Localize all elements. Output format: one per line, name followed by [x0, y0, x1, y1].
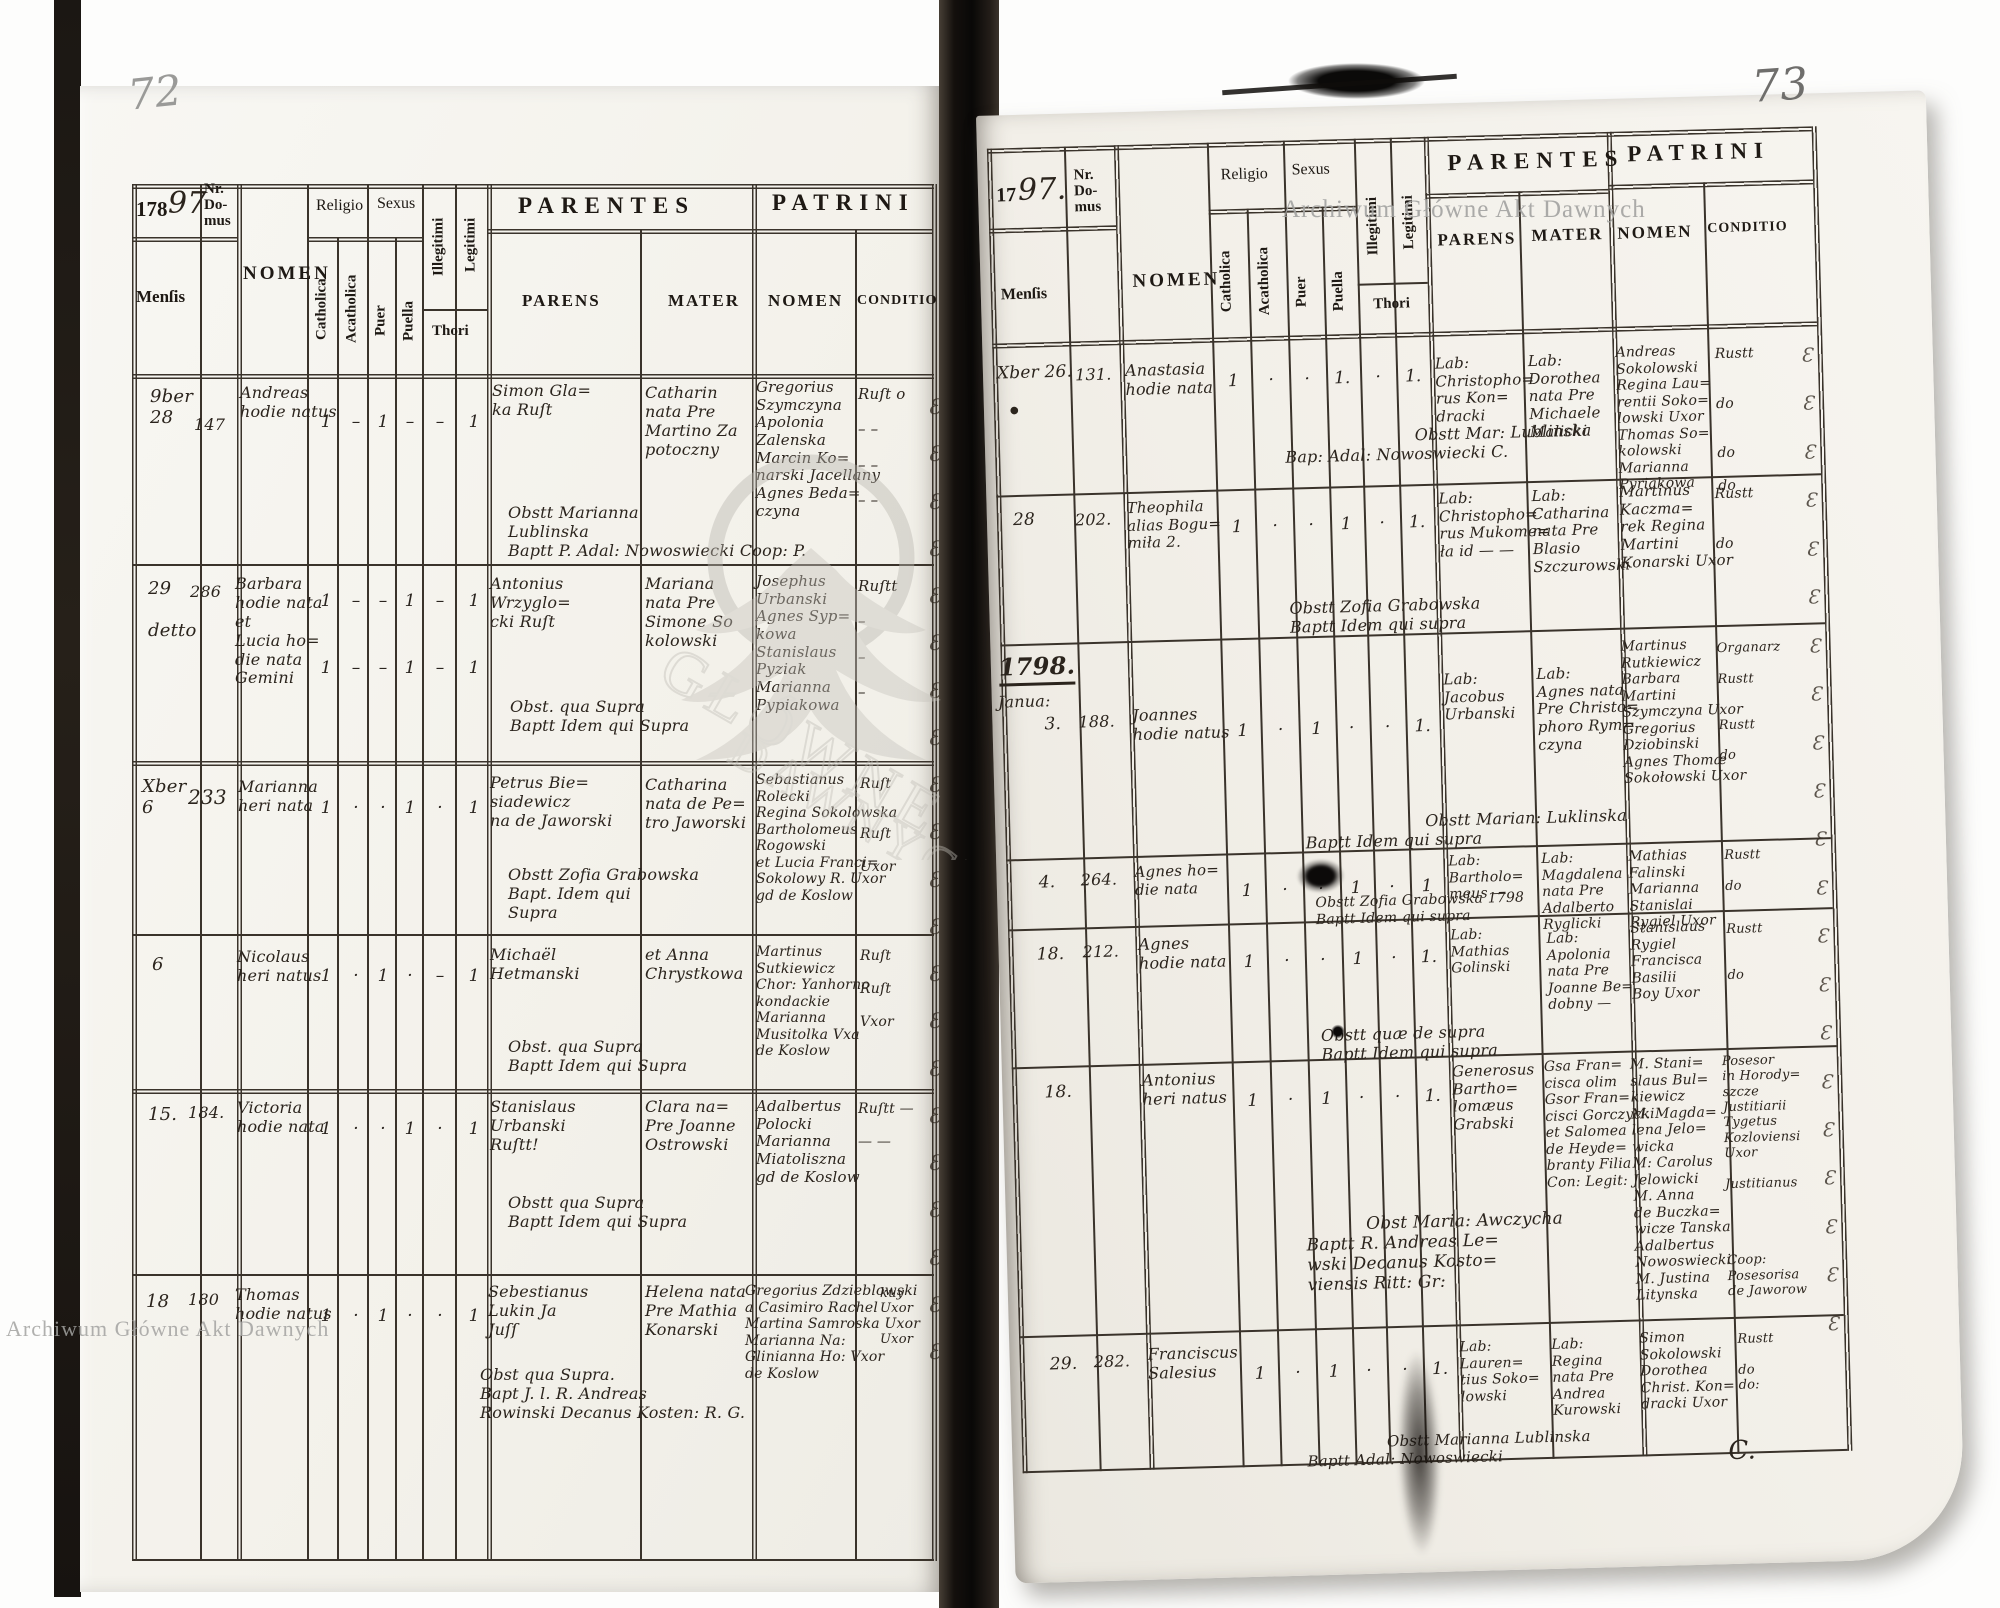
mark-illegitimi: ·	[430, 798, 450, 818]
entry-date: 4.	[1038, 872, 1055, 892]
mark-acatholica: ·	[1277, 951, 1298, 972]
clerk-note: Obstt Mar: Lublinska Bap: Adal: Nowoswie…	[1285, 421, 1626, 468]
col-nr-domus: Nr. Do- mus	[204, 182, 231, 229]
father: Simon Gla= ka Ruſt	[492, 382, 591, 420]
mark-legitimi: 1.	[1422, 1086, 1443, 1107]
child-name: Agnes hodie nata	[1138, 934, 1227, 974]
col-puer: Puer	[1288, 242, 1317, 343]
mark-acatholica: –	[346, 591, 366, 611]
clerk-note: Obstt Marianna Lublinska Baptt P. Adal: …	[508, 504, 806, 561]
mother: Helena nata Pre Mathia Konarski	[645, 1283, 746, 1340]
col-parens: PARENS	[522, 292, 601, 310]
godparents: Josephus Urbanski Agnes Syp= kowa Stanis…	[756, 573, 850, 715]
child-name: Agnes ho= die nata	[1134, 862, 1219, 900]
col-parentes: PARENTES	[1447, 146, 1625, 175]
godparents: Simon Sokolowski Dorothea Christ. Kon= d…	[1639, 1328, 1735, 1413]
mark-acatholica: ·	[1265, 516, 1286, 537]
house-number: 264.	[1080, 870, 1117, 890]
mark-puer: ·	[1313, 950, 1334, 971]
mark-legitimi: 1	[464, 591, 484, 611]
child-name: Nicolaus heri natus	[237, 948, 321, 986]
mark-catholica: 1	[316, 798, 336, 818]
house-number: 147	[194, 416, 225, 435]
rule	[132, 1559, 934, 1561]
clerk-note: Obstt Marianna Lublinska Baptt Adal: Now…	[1307, 1426, 1668, 1471]
col-nomen: NOMEN	[1132, 269, 1220, 291]
father: Petrus Bie= siadewicz na de Jaworski	[490, 774, 612, 831]
clerk-note: Obst. qua Supra Baptt Idem qui Supra	[508, 1038, 687, 1076]
father: Michaël Hetmanski	[490, 946, 580, 984]
entry-date: 3.	[1044, 714, 1061, 734]
rule	[1608, 179, 1813, 190]
godparents: Stanislaus Rygiel Francisca Basilii Boy …	[1630, 919, 1707, 1004]
ink-dot: ●	[1010, 405, 1019, 417]
mark-puella: ·	[400, 1306, 420, 1326]
rule	[132, 184, 934, 189]
mark-puer: 1	[1306, 719, 1327, 740]
condition: Ruſtt — — —	[858, 1101, 914, 1151]
child-name: Joannes hodie natus	[1132, 704, 1230, 744]
year-handwritten: 97	[168, 186, 207, 221]
col-puella: Puella	[396, 271, 422, 371]
mother: Lab: Magdalena nata Pre Adalberto Ryglic…	[1541, 849, 1624, 934]
mark-puer: 1	[373, 412, 393, 432]
condition: Rustt do	[1714, 485, 1755, 552]
clerk-note: Obstt quæ de supra Baptt Idem qui supra	[1321, 1022, 1498, 1065]
col-thori: Thori	[1373, 296, 1410, 313]
year-printed: 17	[996, 185, 1017, 207]
mark-catholica: 1	[316, 658, 336, 678]
mark-puer: 1	[1324, 1362, 1345, 1383]
father: Lab: Lauren= tius Soko= lowski	[1459, 1337, 1540, 1405]
rule	[989, 225, 1116, 233]
archive-watermark-top: Archiwum Główne Akt Dawnych	[1282, 196, 1646, 224]
condition: Posesor in Horody= szcze Justitiarii Tyg…	[1722, 1052, 1808, 1299]
godparents: Martinus Sutkiewicz Chor: Yanhorno konda…	[756, 944, 870, 1060]
house-number: 282.	[1094, 1352, 1131, 1372]
mark-catholica: 1	[1237, 881, 1258, 902]
page-number-left: 72	[126, 65, 185, 120]
entry-date: 29.	[1050, 1354, 1078, 1375]
godparents: Andreas Sokolowski Regina Lau= rentii So…	[1615, 342, 1714, 493]
house-number: 188.	[1078, 712, 1115, 732]
house-number: 202.	[1075, 510, 1112, 530]
house-number: 184.	[188, 1104, 224, 1123]
mark-illegitimi: –	[430, 658, 450, 678]
house-number: 212.	[1082, 942, 1119, 962]
col-catholica: Catholica	[308, 244, 336, 374]
mark-illegitimi: ·	[1387, 1087, 1408, 1108]
rule	[1247, 209, 1283, 1467]
mark-acatholica: ·	[346, 798, 366, 818]
rule	[487, 229, 932, 234]
year-handwritten: 97.	[1018, 172, 1067, 209]
archive-watermark-bottom: Archiwum Główne Akt Dawnych	[6, 1316, 329, 1342]
mark-legitimi: 1.	[1403, 366, 1424, 387]
father: Lab: Mathias Golinski	[1450, 926, 1511, 977]
page-right: 17 97. Nr. Do- mus Menſis NOMEN Religio …	[976, 90, 1965, 1583]
col-mater: MATER	[1531, 225, 1603, 245]
house-number: 180	[188, 1291, 219, 1310]
mark-puer: ·	[373, 798, 393, 818]
mark-puer: –	[373, 591, 393, 611]
mark-catholica: 1	[1223, 371, 1244, 392]
mark-catholica: 1	[1232, 721, 1253, 742]
mark-puella: 1	[1336, 514, 1357, 535]
year-break: 1798.	[999, 652, 1076, 687]
mark-illegitimi: ·	[1384, 948, 1405, 969]
mark-acatholica: ·	[346, 1306, 366, 1326]
mark-acatholica: ·	[1280, 1090, 1301, 1111]
col-patrini: PATRINI	[772, 191, 915, 215]
col-parens: PARENS	[1437, 229, 1516, 249]
mark-legitimi: 1	[464, 412, 484, 432]
col-sexus: Sexus	[377, 196, 415, 213]
mark-acatholica: –	[346, 658, 366, 678]
entry-date: Xber 6	[142, 776, 186, 818]
entry-date: 18	[146, 1291, 169, 1312]
rule	[307, 237, 423, 242]
rule	[337, 237, 339, 1561]
rule	[422, 184, 424, 1561]
mark-puella: 1	[400, 658, 420, 678]
col-patrini: PATRINI	[1627, 139, 1770, 167]
mark-puella: 1	[1348, 949, 1369, 970]
mark-illegitimi: ·	[1377, 717, 1398, 738]
entry-date: 15.	[148, 1104, 177, 1125]
entry-date: 18.	[1036, 944, 1064, 965]
rule	[132, 237, 238, 242]
child-name: Anastasia hodie nata	[1125, 360, 1214, 400]
mark-acatholica: ·	[1288, 1362, 1309, 1383]
mark-legitimi: 1	[464, 1119, 484, 1139]
mark-legitimi: 1.	[1419, 947, 1440, 968]
condition: Rustt do	[1724, 847, 1762, 894]
child-name: Barbara hodie nata et Lucia ho= die nata…	[235, 575, 323, 688]
col-conditio: CONDITIO	[1707, 220, 1788, 237]
clerk-note: Obst qua Supra. Bapt J. l. R. Andreas Ro…	[480, 1366, 745, 1423]
mother: Lab: Catharina nata Pre Blasio Szczurows…	[1531, 485, 1630, 576]
mark-legitimi: 1	[464, 1306, 484, 1326]
clerk-note: Obstt qua Supra Baptt Idem qui Supra	[508, 1194, 687, 1232]
col-legitimi: Legitimi	[456, 186, 486, 304]
clerk-note: Obstt Zofia Grabowska Bapt. Idem qui Sup…	[508, 866, 699, 923]
father: Stanislaus Urbanski Ruſtt!	[490, 1098, 576, 1155]
col-mensis: Menſis	[136, 288, 185, 306]
col-patrini-nomen: NOMEN	[768, 292, 843, 310]
clerk-note: Obst Maria: Awczycha Baptt R. Andreas Le…	[1306, 1207, 1638, 1296]
mother: Catharina nata de Pe= tro Jaworski	[645, 776, 746, 833]
rule	[132, 564, 934, 566]
mark-puella: 1	[400, 591, 420, 611]
mark-catholica: 1	[316, 966, 336, 986]
rule	[132, 184, 137, 1561]
left-page-edge	[54, 0, 81, 1597]
condition: Rustt do	[1726, 921, 1764, 983]
entry-date: 6	[152, 954, 164, 975]
mark-acatholica: –	[346, 412, 366, 432]
col-sexus: Sexus	[1291, 161, 1330, 179]
mark-puer: 1	[1316, 1089, 1337, 1110]
year-printed: 178	[136, 198, 168, 220]
mark-puella: –	[400, 412, 420, 432]
child-name: Marianna heri nata	[238, 778, 318, 816]
mark-legitimi: 1	[464, 966, 484, 986]
col-patrini-nomen: NOMEN	[1617, 223, 1693, 243]
col-religio: Religio	[316, 198, 363, 215]
page-number-right: 73	[1750, 58, 1810, 114]
mark-puella: ·	[1359, 1361, 1380, 1382]
mark-catholica: 1	[316, 1119, 336, 1139]
col-religio: Religio	[1220, 166, 1268, 184]
register-scan: 178 97 Nr. Do- mus Menſis NOMEN Religio …	[0, 0, 2000, 1608]
col-mater: MATER	[668, 292, 740, 310]
mark-illegitimi: –	[430, 966, 450, 986]
father: Lab: Jacobus Urbanski	[1443, 670, 1516, 725]
house-number: 286	[190, 583, 221, 602]
clerk-note: Obstt Zofia Grabowska Baptt Idem qui sup…	[1289, 595, 1481, 638]
mark-illegitimi: ·	[430, 1119, 450, 1139]
mark-puer: ·	[1301, 515, 1322, 536]
mark-legitimi: 1.	[1430, 1359, 1451, 1380]
entry-date: 18.	[1044, 1082, 1072, 1103]
entry-date: Xber 26.	[997, 361, 1073, 383]
rule	[200, 184, 202, 1561]
condition: Ruſt Ruſt Uxor	[860, 776, 896, 875]
month-label: Janua:	[998, 692, 1051, 712]
condition: kuy Uxor Uxor	[880, 1286, 913, 1347]
condition: Rustt do do:	[1737, 1331, 1775, 1393]
father: Antonius Wrzyglo= cki Ruſt	[490, 575, 571, 632]
mark-acatholica: ·	[346, 966, 366, 986]
col-conditio: CONDITIO	[857, 294, 937, 309]
rule	[132, 761, 934, 766]
mark-puella: ·	[400, 966, 420, 986]
seal-initial: C.	[1728, 1435, 1756, 1466]
child-name: Antonius heri natus	[1142, 1070, 1227, 1110]
rule	[132, 1274, 934, 1276]
mark-puella: 1	[400, 1119, 420, 1139]
mark-puella: 1	[400, 798, 420, 818]
mark-illegitimi: ·	[1372, 513, 1393, 534]
col-illegitimi: Illegitimi	[1357, 170, 1390, 283]
condition: Ruſtt – – –	[858, 578, 898, 702]
col-acatholica: Acatholica	[338, 244, 366, 374]
mark-acatholica: ·	[346, 1119, 366, 1139]
col-mensis: Menſis	[1001, 286, 1048, 304]
mark-puer: 1	[373, 966, 393, 986]
mark-illegitimi: ·	[1395, 1360, 1416, 1381]
mark-puer: ·	[1297, 369, 1318, 390]
mark-acatholica: ·	[1275, 880, 1296, 901]
mother: Mariana nata Pre Simone So kolowski	[645, 575, 733, 651]
mark-acatholica: ·	[1270, 720, 1291, 741]
rule	[395, 237, 397, 1561]
child-name: Theophila alias Bogu= miła 2.	[1126, 498, 1221, 554]
rule	[367, 184, 369, 1561]
mark-illegitimi: ·	[1368, 367, 1389, 388]
col-illegitimi: Illegitimi	[424, 188, 454, 306]
child-name: Victoria hodie nata	[237, 1099, 325, 1137]
clerk-note: Obstt Zofia Grabowska 1798 Baptt Idem qu…	[1315, 889, 1525, 928]
mark-acatholica: ·	[1261, 370, 1282, 391]
rule	[455, 184, 457, 1561]
mark-legitimi: 1.	[1412, 716, 1433, 737]
godparents: Adalbertus Polocki Marianna Miatoliszna …	[756, 1098, 860, 1186]
mark-legitimi: 1	[464, 798, 484, 818]
mark-illegitimi: –	[430, 412, 450, 432]
condition: Rustt do do do	[1714, 345, 1757, 495]
rule	[132, 934, 934, 936]
mark-catholica: 1	[1239, 952, 1260, 973]
mark-legitimi: 1.	[1407, 512, 1428, 533]
mark-puer: –	[373, 658, 393, 678]
page-left: 178 97 Nr. Do- mus Menſis NOMEN Religio …	[80, 86, 943, 1592]
mother: Lab: Regina nata Pre Andrea Kurowski	[1551, 1335, 1621, 1419]
mark-catholica: 1	[1250, 1364, 1271, 1385]
clerk-note: Obstt Marian: Luklinska Baptt Idem qui s…	[1305, 806, 1646, 853]
col-puer: Puer	[368, 271, 394, 371]
mark-illegitimi: –	[430, 591, 450, 611]
mark-catholica: 1	[316, 591, 336, 611]
godparents: M. Stani= slaus Bul= kiewicz M. Magda= l…	[1630, 1054, 1733, 1304]
mark-puella: ·	[1351, 1088, 1372, 1109]
mother: Catharin nata Pre Martino Za potoczny	[645, 384, 738, 460]
mark-puer: ·	[373, 1119, 393, 1139]
condition: Organarz Rustt Rustt do	[1716, 639, 1783, 763]
mark-catholica: 1	[1227, 517, 1248, 538]
col-thori: Thori	[432, 324, 469, 340]
col-nr-domus: Nr. Do- mus	[1073, 168, 1101, 216]
mark-puella: 1.	[1332, 368, 1353, 389]
entry-date: 9ber 28	[150, 386, 193, 428]
father: Sebestianus Lukin Ja Juſſ	[488, 1283, 588, 1340]
mark-catholica: 1	[1242, 1091, 1263, 1112]
condition: Ruſt o – – – – – –	[858, 386, 906, 510]
house-number: 233	[188, 786, 227, 810]
crossed-out-smudge	[1252, 56, 1442, 106]
col-acatholica: Acatholica	[1249, 218, 1280, 344]
condition: Ruſt Ruſt Vxor	[860, 948, 894, 1031]
mark-puer: 1	[373, 1306, 393, 1326]
house-number: 131.	[1075, 365, 1112, 385]
father: Lab: Christopho= rus Kon= dracki	[1435, 353, 1536, 426]
col-puella: Puella	[1325, 241, 1354, 342]
mark-catholica: 1	[316, 412, 336, 432]
mark-illegitimi: ·	[430, 1306, 450, 1326]
mark-puella: ·	[1341, 718, 1362, 739]
entry-date: 28	[1013, 510, 1036, 531]
clerk-note: Obst. qua Supra Baptt Idem qui Supra	[510, 698, 689, 736]
mark-legitimi: 1	[464, 658, 484, 678]
rule	[132, 1089, 934, 1094]
strike-line	[1222, 74, 1457, 95]
mother: Lab: Apolonia nata Pre Joanne Be= dobny …	[1546, 929, 1634, 1014]
father: Generosus Bartho= lomæus Grabski	[1452, 1061, 1536, 1134]
mother: et Anna Chrystkowa	[645, 946, 743, 984]
child-name: Franciscus Salesius	[1147, 1343, 1238, 1383]
col-catholica: Catholica	[1211, 219, 1242, 345]
col-parentes: PARENTES	[518, 194, 695, 218]
mother: Clara na= Pre Joanne Ostrowski	[645, 1098, 736, 1155]
